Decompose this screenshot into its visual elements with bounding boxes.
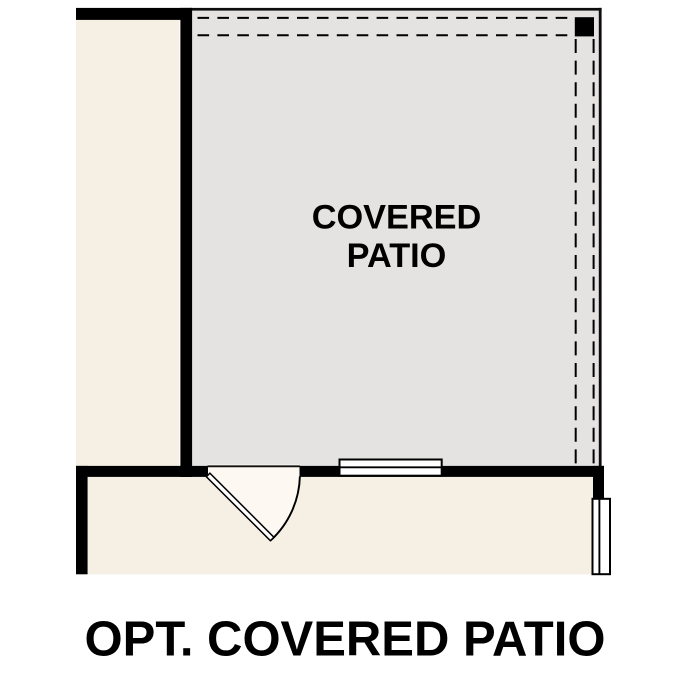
svg-text:OPT. COVERED PATIO: OPT. COVERED PATIO: [85, 613, 606, 667]
svg-text:PATIO: PATIO: [347, 237, 447, 275]
svg-text:COVERED: COVERED: [312, 199, 482, 237]
